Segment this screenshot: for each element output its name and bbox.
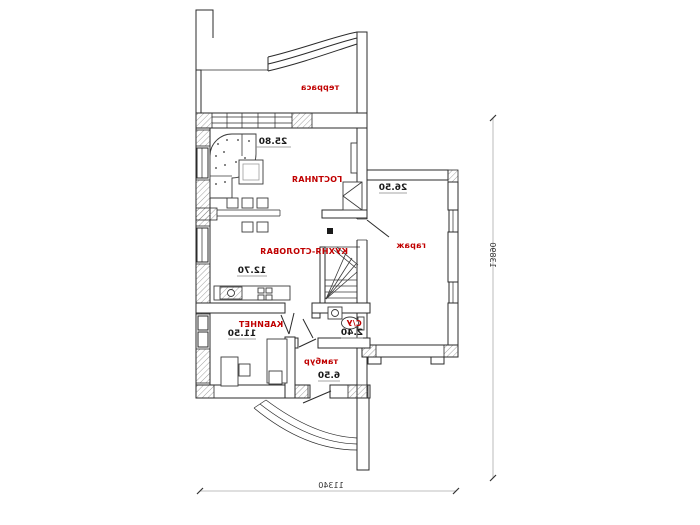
terrace-curved-edge [268,32,357,71]
office-label: КАБИНЕТ [238,320,283,329]
vestibule-door [299,339,316,347]
bar-stools [227,198,268,232]
bar-counter [217,210,280,216]
office-wardrobe [267,339,287,384]
garage-label: гараж [396,241,426,250]
living-kitchen-wall [322,210,367,218]
vestibule-area: 6.50 [318,371,340,381]
office-top-wall [196,303,285,313]
wc-area: 2.40 [341,328,363,338]
coffee-table [239,160,263,184]
vestibule-top-wall [318,338,370,348]
bottom-dimension: 11340 [197,481,459,494]
garage-area: 26.50 [379,183,407,193]
floor-plan-canvas: терраса 25.80 ГОСТИНАЯ КУХНЯ-СТОЛОВАЯ 12… [0,0,700,525]
porch-pillar [357,398,369,470]
column [327,228,333,234]
fireplace [343,182,362,210]
bottom-dimension-text: 11340 [318,481,343,490]
kitchen-dining-area: 12.70 [238,266,266,276]
living-window [197,148,208,178]
wc-label: С/У [346,319,362,328]
office-desk [221,357,250,386]
living-room-label: ГОСТИНАЯ [292,175,343,184]
kitchen-window [197,228,208,262]
kitchen-counter [214,286,290,300]
right-dimension-text: 13890 [488,242,497,267]
living-room-area: 25.80 [259,137,287,147]
office-area: 11.50 [228,329,256,339]
wc-left-wall [312,313,320,318]
garage-top-wall [367,170,448,180]
wc-sink [328,307,342,319]
terrace-label: терраса [301,83,339,92]
living-top-wall [196,113,367,128]
top-left-wall-fragment [196,10,213,72]
kitchen-dining-label: КУХНЯ-СТОЛОВАЯ [260,247,348,256]
terrace-left-wall [196,70,201,115]
exterior-walls [196,10,458,470]
radiator [351,143,357,173]
wc-door [303,319,313,338]
garage-window-2 [449,282,458,303]
office-window-2 [198,332,208,347]
vestibule-label: тамбур [304,356,338,366]
right-dimension: 13890 [488,115,497,481]
office-window-1 [198,316,208,330]
floor-plan: терраса 25.80 ГОСТИНАЯ КУХНЯ-СТОЛОВАЯ 12… [0,0,700,525]
garage-door [357,219,390,240]
porch-steps [254,400,357,450]
garage-window-1 [449,210,458,232]
